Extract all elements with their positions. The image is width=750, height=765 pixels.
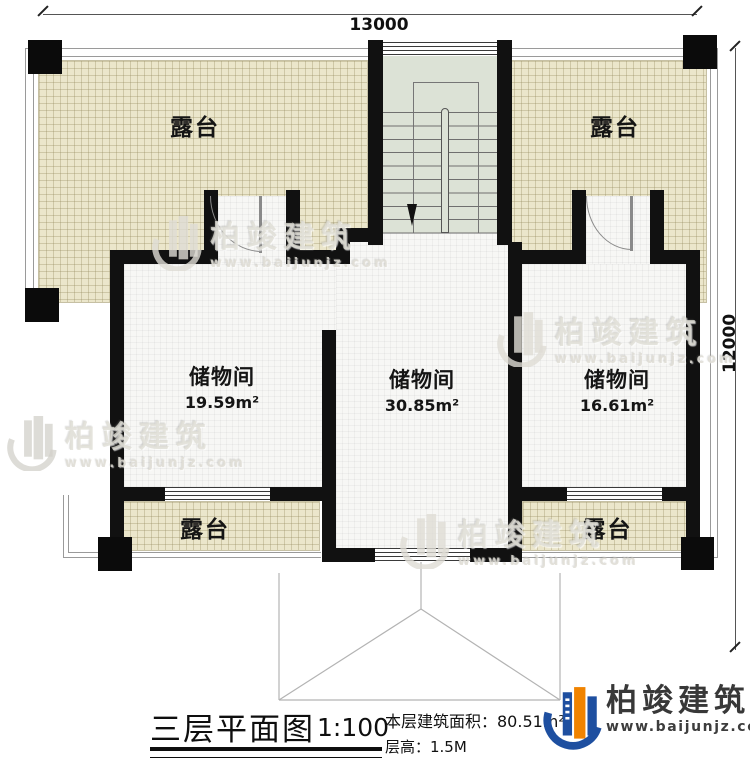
terrace-label-top-left: 露台: [130, 108, 260, 142]
title-underline: [150, 747, 382, 751]
stairwell-wall-right: [497, 40, 512, 245]
wall: [508, 242, 522, 562]
terrace-label-bottom-left: 露台: [140, 510, 270, 544]
wall: [286, 190, 300, 264]
room-area: 19.59m²: [152, 393, 292, 412]
plan-title: 三层平面图: [150, 704, 315, 749]
wall: [470, 548, 522, 562]
terrace-label-bottom-right: 露台: [540, 510, 675, 544]
stair-direction-arrow: [407, 204, 417, 226]
wall: [664, 250, 700, 264]
column: [28, 40, 62, 74]
title-underline-thin: [150, 757, 382, 758]
room-label-right: 储物间 16.61m²: [547, 364, 687, 415]
logo-company: 柏竣建筑: [606, 684, 750, 718]
wall: [110, 250, 124, 562]
wall: [572, 190, 586, 264]
floor-height-text: 层高：1.5M: [385, 736, 467, 757]
plan-scale: 1:100: [317, 713, 389, 742]
wall: [522, 250, 576, 264]
door-leaf: [630, 196, 633, 251]
window: [165, 487, 270, 500]
column: [683, 35, 717, 69]
wall: [686, 250, 700, 562]
wall: [650, 190, 664, 264]
wall: [322, 330, 336, 562]
wall: [270, 487, 336, 501]
room-label-left: 储物间 19.59m²: [152, 361, 292, 412]
room-area: 16.61m²: [547, 396, 687, 415]
wall: [110, 487, 165, 501]
room-name: 储物间: [152, 361, 292, 391]
door-leaf: [259, 196, 262, 253]
room-name: 储物间: [547, 364, 687, 394]
stairwell-wall-left: [368, 40, 383, 245]
floor-area-text: 本层建筑面积：80.51m²: [385, 708, 565, 732]
wall: [110, 250, 204, 264]
company-logo: 柏竣建筑 www.baijunjz.com: [540, 684, 750, 752]
window: [567, 487, 662, 500]
room-label-middle: 储物间 30.85m²: [352, 364, 492, 415]
room-floor-opening: [322, 264, 336, 330]
stair-treads: [383, 112, 497, 234]
column: [98, 537, 132, 571]
room-area: 30.85m²: [352, 396, 492, 415]
wall: [522, 487, 567, 501]
window: [375, 548, 470, 561]
stair-center-railing: [441, 108, 449, 233]
column: [25, 288, 59, 322]
wall: [662, 487, 700, 501]
window: [383, 42, 497, 55]
wall: [336, 228, 350, 264]
logo-website: www.baijunjz.com: [606, 719, 750, 735]
terrace-label-top-right: 露台: [545, 108, 685, 142]
floor-plan: 13000 12000: [0, 0, 750, 765]
wall: [322, 548, 375, 562]
logo-icon: [540, 684, 602, 752]
room-name: 储物间: [352, 364, 492, 394]
column: [681, 537, 714, 570]
